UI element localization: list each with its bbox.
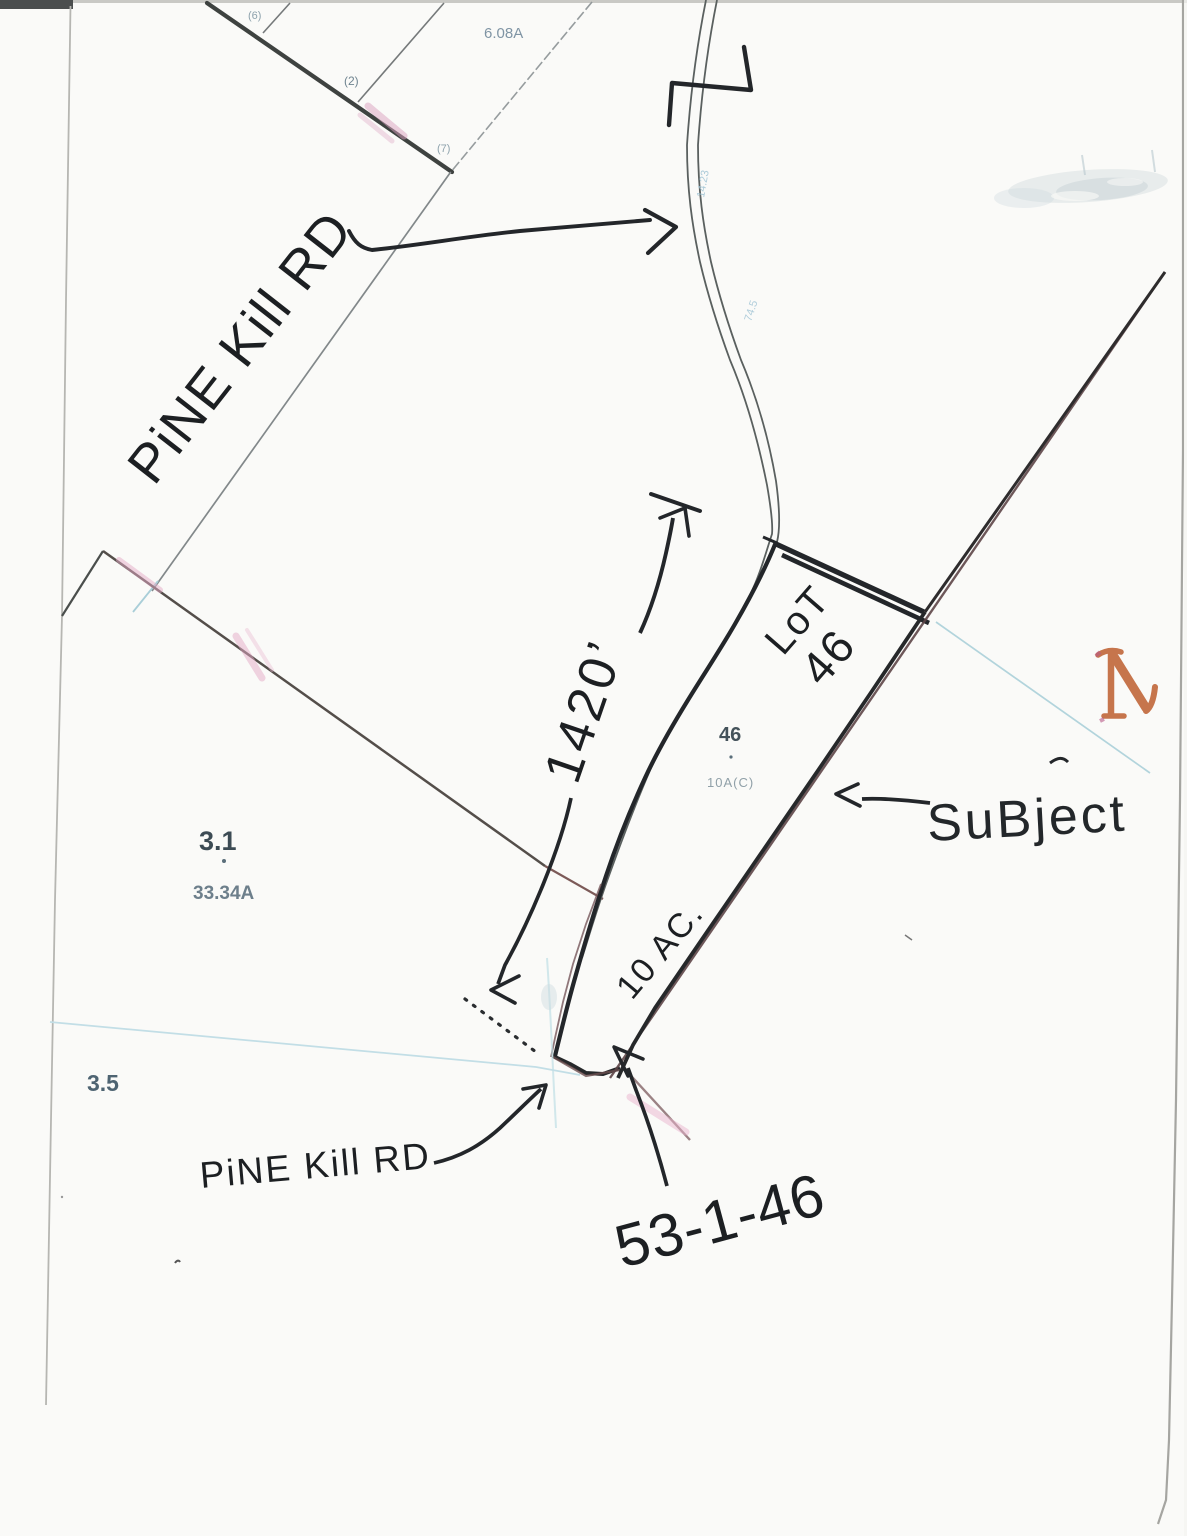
svg-text:(6): (6) [248, 10, 261, 22]
svg-text:6.08A: 6.08A [484, 25, 523, 42]
svg-text:SuBject: SuBject [926, 785, 1129, 853]
svg-text:(2): (2) [344, 74, 359, 88]
svg-text:3.5: 3.5 [87, 1070, 119, 1096]
svg-text:(7): (7) [437, 143, 450, 155]
svg-text:46: 46 [719, 724, 741, 746]
svg-text:3.1: 3.1 [199, 826, 237, 856]
svg-text:10A(C): 10A(C) [707, 775, 754, 790]
svg-text:33.34A: 33.34A [193, 883, 255, 904]
